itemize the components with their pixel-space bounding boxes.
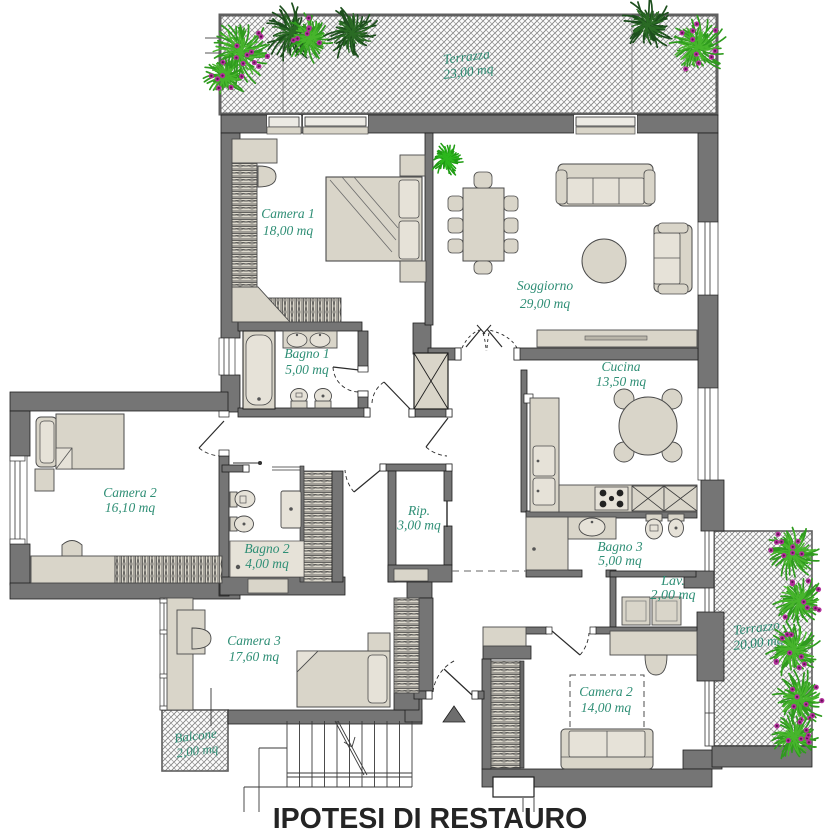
svg-text:Cucina13,50 mq: Cucina13,50 mq [596, 359, 646, 389]
svg-text:Balcone2,00 mq: Balcone2,00 mq [173, 725, 219, 760]
svg-text:Camera 317,60 mq: Camera 317,60 mq [227, 633, 281, 664]
svg-text:Bagno 15,00 mq: Bagno 15,00 mq [284, 346, 329, 377]
svg-text:Bagno 24,00 mq: Bagno 24,00 mq [244, 541, 290, 571]
svg-text:Bagno 35,00 mq: Bagno 35,00 mq [597, 539, 643, 568]
svg-text:Camera 216,10 mq: Camera 216,10 mq [103, 485, 157, 515]
svg-text:Camera 214,00 mq: Camera 214,00 mq [579, 684, 633, 715]
svg-text:IPOTESI DI RESTAURO: IPOTESI DI RESTAURO [273, 803, 588, 835]
svg-text:Terrazza23,00 mq: Terrazza23,00 mq [441, 46, 495, 82]
